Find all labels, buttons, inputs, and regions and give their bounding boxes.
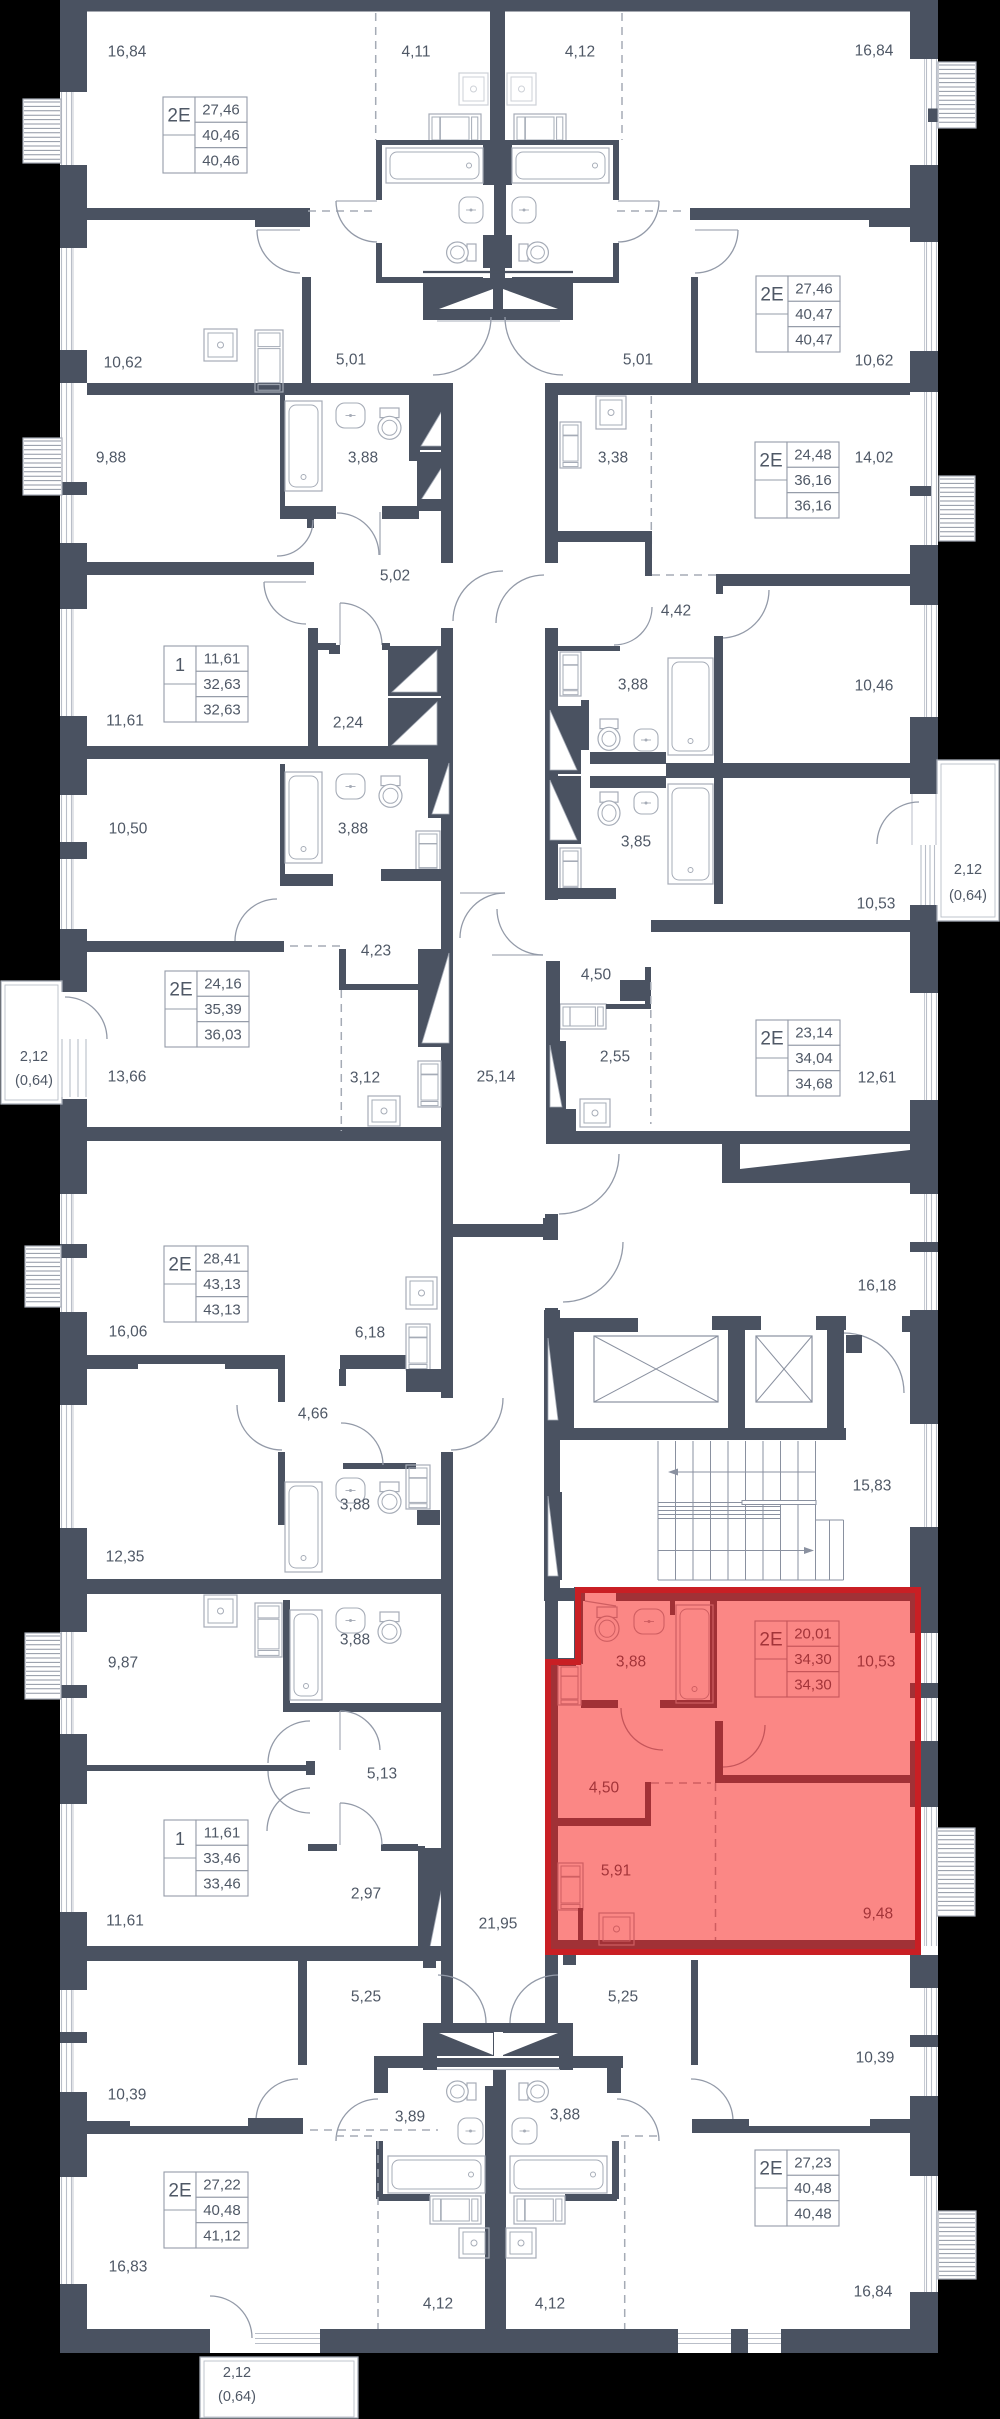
svg-text:14,02: 14,02 [855,450,894,467]
svg-text:3,12: 3,12 [350,1070,380,1087]
svg-text:4,12: 4,12 [423,2296,453,2313]
svg-text:40,48: 40,48 [794,2180,832,2197]
svg-text:41,12: 41,12 [203,2227,241,2244]
svg-text:(0,64): (0,64) [15,1073,53,1089]
svg-text:27,46: 27,46 [795,281,833,298]
svg-text:3,88: 3,88 [338,821,368,838]
svg-text:11,61: 11,61 [204,1825,240,1842]
svg-text:15,83: 15,83 [853,1478,892,1495]
svg-text:2Е: 2Е [168,1255,191,1276]
svg-text:3,89: 3,89 [395,2109,425,2126]
svg-text:16,84: 16,84 [854,2284,893,2301]
svg-text:2Е: 2Е [759,451,782,472]
svg-text:34,68: 34,68 [795,1075,833,1092]
svg-text:2Е: 2Е [168,2181,191,2202]
svg-text:11,61: 11,61 [106,1913,144,1930]
svg-text:10,39: 10,39 [856,2050,895,2067]
svg-text:32,63: 32,63 [203,701,241,718]
svg-text:13,66: 13,66 [108,1069,147,1086]
svg-text:5,25: 5,25 [608,1989,638,2006]
svg-text:9,88: 9,88 [96,450,126,467]
svg-text:12,61: 12,61 [858,1070,897,1087]
svg-text:10,62: 10,62 [855,353,894,370]
svg-text:36,03: 36,03 [204,1026,242,1043]
svg-text:16,84: 16,84 [855,43,894,60]
svg-text:40,47: 40,47 [795,331,833,348]
svg-text:1: 1 [175,655,185,675]
svg-text:40,46: 40,46 [202,127,240,144]
svg-text:24,48: 24,48 [794,447,832,464]
svg-text:27,22: 27,22 [203,2177,241,2194]
svg-text:36,16: 36,16 [794,472,832,489]
svg-text:4,42: 4,42 [661,603,691,620]
svg-text:3,88: 3,88 [618,677,648,694]
svg-text:6,18: 6,18 [355,1325,385,1342]
svg-text:3,38: 3,38 [598,450,628,467]
svg-text:2,12: 2,12 [223,2365,251,2381]
svg-text:10,39: 10,39 [108,2087,147,2104]
svg-text:2Е: 2Е [760,1029,783,1050]
svg-text:2,97: 2,97 [351,1886,381,1903]
svg-text:4,12: 4,12 [535,2296,565,2313]
svg-text:33,46: 33,46 [203,1875,241,1892]
svg-text:2,12: 2,12 [20,1049,48,1065]
svg-text:34,04: 34,04 [795,1050,833,1067]
svg-text:27,46: 27,46 [202,102,240,119]
svg-text:3,88: 3,88 [550,2107,580,2124]
svg-text:23,14: 23,14 [795,1025,833,1042]
svg-text:40,48: 40,48 [203,2202,241,2219]
svg-text:2Е: 2Е [167,106,190,127]
svg-text:5,01: 5,01 [623,352,653,369]
svg-text:2Е: 2Е [760,285,783,306]
svg-text:2,24: 2,24 [333,715,364,732]
svg-text:4,12: 4,12 [565,44,595,61]
svg-text:11,61: 11,61 [204,651,240,668]
svg-text:2,12: 2,12 [954,862,982,878]
svg-text:40,47: 40,47 [795,306,833,323]
svg-text:10,62: 10,62 [104,355,143,372]
svg-text:10,46: 10,46 [855,678,894,695]
svg-text:40,46: 40,46 [202,152,240,169]
svg-text:32,63: 32,63 [203,676,241,693]
svg-text:11,61: 11,61 [106,713,144,730]
svg-text:43,13: 43,13 [203,1276,241,1293]
svg-text:(0,64): (0,64) [949,888,987,904]
svg-text:4,66: 4,66 [298,1406,328,1423]
svg-text:24,16: 24,16 [204,976,242,993]
svg-text:21,95: 21,95 [479,1916,518,1933]
svg-text:5,01: 5,01 [336,352,366,369]
svg-text:4,11: 4,11 [401,44,430,61]
svg-text:43,13: 43,13 [203,1301,241,1318]
svg-text:27,23: 27,23 [794,2155,832,2172]
svg-text:5,02: 5,02 [380,568,410,585]
svg-text:5,13: 5,13 [367,1766,397,1783]
svg-text:3,88: 3,88 [340,1497,370,1514]
svg-text:3,88: 3,88 [348,450,378,467]
svg-text:16,84: 16,84 [108,44,147,61]
svg-text:(0,64): (0,64) [218,2389,256,2405]
svg-text:2,55: 2,55 [600,1049,630,1066]
svg-text:3,88: 3,88 [340,1632,370,1649]
svg-text:16,18: 16,18 [858,1278,897,1295]
svg-text:33,46: 33,46 [203,1850,241,1867]
svg-text:16,06: 16,06 [109,1324,148,1341]
svg-text:28,41: 28,41 [203,1251,241,1268]
svg-text:25,14: 25,14 [477,1069,516,1086]
svg-text:5,25: 5,25 [351,1989,381,2006]
svg-text:2Е: 2Е [759,2159,782,2180]
svg-text:16,83: 16,83 [109,2259,148,2276]
svg-text:4,23: 4,23 [361,943,391,960]
svg-text:35,39: 35,39 [204,1001,242,1018]
svg-text:1: 1 [175,1829,185,1849]
svg-text:10,50: 10,50 [109,821,148,838]
svg-text:3,85: 3,85 [621,834,651,851]
svg-text:2Е: 2Е [169,980,192,1001]
svg-text:36,16: 36,16 [794,497,832,514]
svg-text:12,35: 12,35 [106,1549,145,1566]
svg-text:10,53: 10,53 [857,896,896,913]
svg-text:4,50: 4,50 [581,967,612,984]
svg-text:40,48: 40,48 [794,2205,832,2222]
svg-text:9,87: 9,87 [108,1655,138,1672]
